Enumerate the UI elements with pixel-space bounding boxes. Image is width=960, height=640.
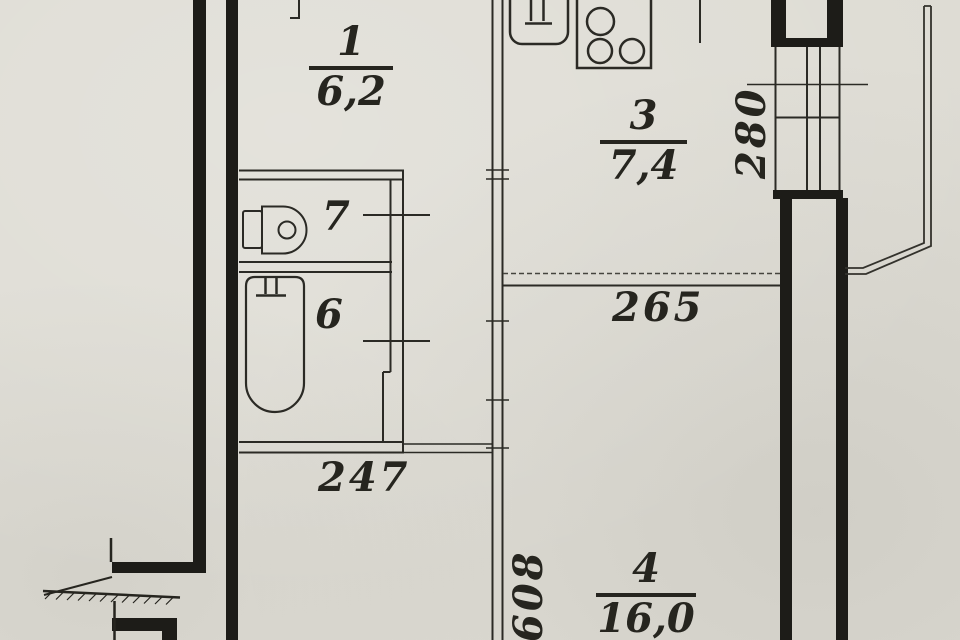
bath-bottom-wall (239, 442, 404, 453)
bathtub-icon (246, 277, 304, 412)
room-number: 3 (630, 96, 658, 136)
entrance-jamb-top (112, 562, 206, 573)
room-area: 6,2 (316, 72, 386, 112)
stove-burner-icon (620, 39, 644, 63)
dimension-608: 608 (509, 550, 549, 640)
room-number: 1 (337, 22, 365, 62)
dimension-265: 265 (612, 288, 696, 328)
room-label-kitchen: 3 7,4 (596, 96, 691, 186)
hall-top-door-jamb (290, 0, 300, 18)
dimension-247: 247 (318, 458, 406, 498)
sink-icon (510, 0, 568, 44)
entrance-wall-stub (162, 618, 177, 640)
floorplan-page: 1 6,2 3 7,4 4 16,0 7 6 280 265 247 608 (0, 0, 960, 640)
toilet-tank-icon (243, 211, 262, 248)
left-wall-inner (226, 0, 238, 640)
left-wall-outer (193, 0, 206, 573)
wall-joint-ticks (486, 170, 509, 448)
stove-burner-icon (587, 8, 614, 35)
room-area: 7,4 (609, 146, 679, 186)
room-label-bath: 6 (315, 295, 343, 335)
room-area: 16,0 (597, 599, 694, 639)
room-number: 4 (632, 549, 660, 589)
stove-burner-icon (588, 39, 612, 63)
corridor-bottom-wall (404, 444, 492, 453)
wc-top-wall (239, 171, 404, 180)
stair-hatch-line (43, 591, 180, 598)
wc-bath-partition (239, 262, 392, 272)
sink-faucet-icon (525, 0, 552, 24)
window-sill-bottom (773, 190, 843, 199)
room-label-living: 4 16,0 (592, 549, 700, 639)
dimension-280: 280 (732, 93, 772, 179)
balcony-outline (845, 6, 931, 274)
sanitary-right-wall (383, 170, 403, 453)
toilet-drain-icon (279, 222, 296, 239)
right-wall-top-b (827, 0, 843, 40)
corridor-wall (493, 0, 503, 640)
floorplan-drawing (0, 0, 960, 640)
window-sill-top (771, 38, 843, 47)
room-label-hall: 1 6,2 (305, 22, 397, 112)
toilet-icon (262, 207, 307, 254)
right-wall-lower-a (780, 198, 792, 640)
right-wall-lower-b (836, 198, 848, 640)
bath-faucet-icon (256, 276, 286, 296)
stove-icon (577, 0, 651, 68)
room-label-wc: 7 (322, 197, 350, 237)
